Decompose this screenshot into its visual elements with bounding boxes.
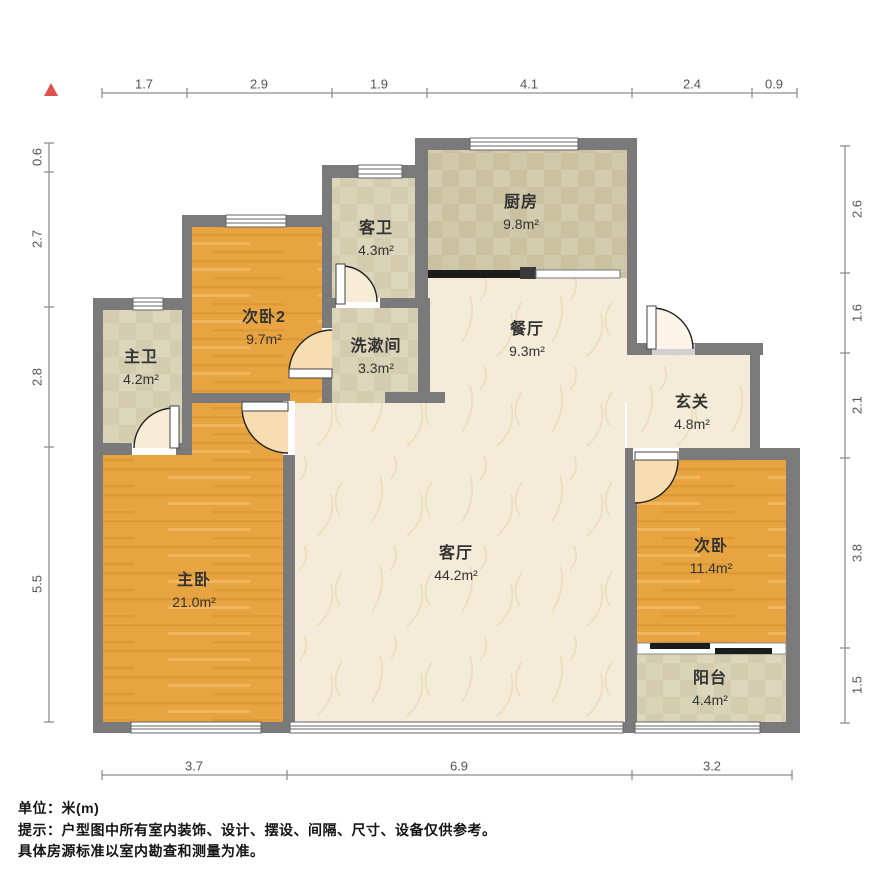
floor-living — [283, 393, 625, 723]
dim-label-right-1: 2.6 — [850, 200, 865, 218]
window-glyph-kitchen — [470, 138, 578, 150]
wall-washroom-bottom-stub — [385, 392, 445, 403]
footer-unit-note: 单位：米(m) — [18, 798, 99, 818]
window-glyph-masterbath — [133, 298, 163, 310]
window-glyph-bedroom2 — [226, 215, 286, 227]
dimension-line-left — [44, 143, 54, 722]
door-swing-glyph-entry — [647, 306, 693, 349]
floor-dining — [415, 270, 637, 403]
window-glyph-living — [290, 722, 623, 733]
floor-master-bedroom — [93, 443, 295, 733]
dim-label-top-2: 2.9 — [250, 77, 268, 92]
north-arrow-icon — [44, 83, 58, 96]
wall-washroom-right — [418, 298, 430, 403]
wall-masterbedroom-right — [283, 455, 295, 733]
dim-label-top-1: 1.7 — [135, 77, 153, 92]
wall-masterbath-right — [182, 215, 192, 455]
dim-label-bottom-1: 3.7 — [185, 759, 203, 774]
dim-label-top-4: 4.1 — [520, 77, 538, 92]
dim-label-left-3: 2.8 — [30, 368, 45, 386]
sliding-door-glyph-balcony — [637, 643, 786, 654]
dim-label-left-4: 5.5 — [30, 575, 45, 593]
dim-label-top-5: 2.4 — [683, 77, 701, 92]
dim-label-right-4: 3.8 — [850, 544, 865, 562]
wall-kitchen-left — [415, 138, 428, 308]
dim-label-top-3: 1.9 — [370, 77, 388, 92]
footer-hint-note2: 具体房源标准以室内勘查和测量为准。 — [18, 841, 265, 861]
window-glyph-masterbedroom — [131, 722, 261, 733]
window-glyph-balcony — [635, 722, 760, 733]
floorplan-drawing — [0, 0, 895, 872]
dimension-line-right — [840, 146, 850, 723]
floor-entry — [627, 343, 760, 460]
floor-washroom — [322, 298, 430, 403]
floor-balcony — [625, 643, 800, 728]
wall-left-exterior — [93, 298, 103, 733]
dim-label-bottom-3: 3.2 — [703, 759, 721, 774]
dim-label-right-5: 1.5 — [850, 676, 865, 694]
window-glyph-guestbath — [358, 165, 402, 178]
dim-label-bottom-2: 6.9 — [450, 759, 468, 774]
dimension-line-bottom — [102, 770, 792, 780]
wall-right-exterior — [786, 448, 800, 733]
dim-label-top-6: 0.9 — [765, 77, 783, 92]
dim-label-right-3: 2.1 — [850, 396, 865, 414]
wall-entry-right — [750, 343, 760, 460]
wall-kitchen-right — [627, 138, 637, 355]
floorplan-canvas: 次卧2 9.7m² 客卫 4.3m² 厨房 9.8m² 餐厅 9.3m² 洗漱间… — [0, 0, 895, 872]
dim-label-right-2: 1.6 — [850, 304, 865, 322]
dim-label-left-1: 0.6 — [30, 148, 45, 166]
dim-label-left-2: 2.7 — [30, 230, 45, 248]
footer-hint-note: 提示：户型图中所有室内装饰、设计、摆设、间隔、尺寸、设备仅供参考。 — [18, 820, 497, 840]
floor-kitchen — [415, 138, 637, 278]
